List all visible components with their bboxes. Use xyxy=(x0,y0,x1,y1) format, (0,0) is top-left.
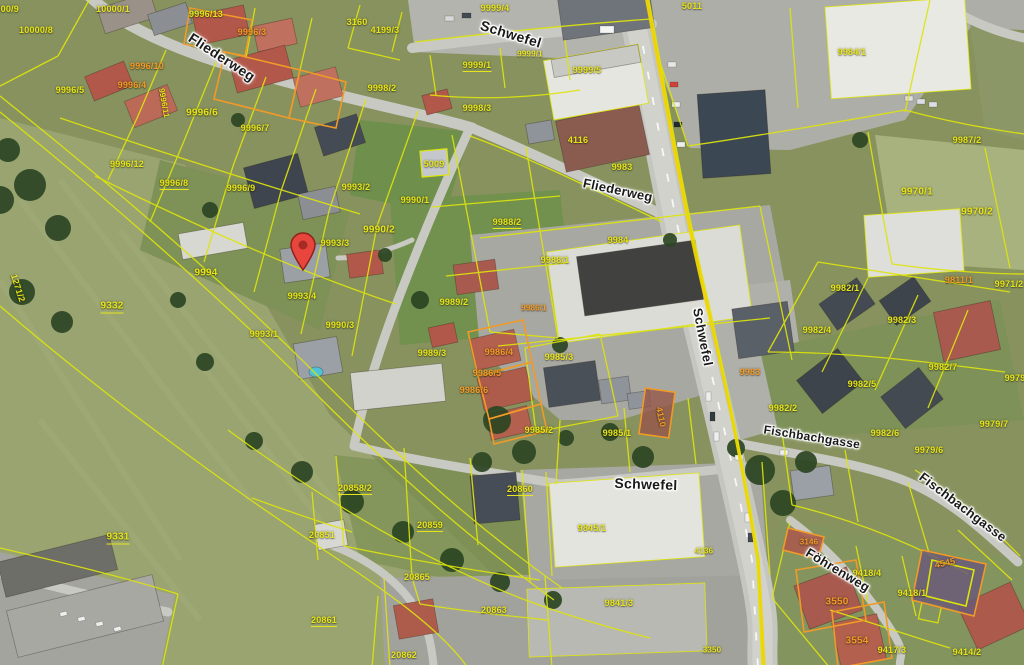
parcel-label: 9996/5 xyxy=(56,85,85,95)
street-label: Fliederweg xyxy=(582,175,654,204)
parcel-label: 3160 xyxy=(347,17,368,27)
street-label: Fischbachgasse xyxy=(763,422,862,451)
parcel-label: 9332 xyxy=(100,301,123,314)
parcel-label: 9986/6 xyxy=(460,385,489,395)
parcel-label: 9993/1 xyxy=(250,329,279,339)
parcel-label: 9985/3 xyxy=(545,352,574,362)
parcel-label: 9999/4 xyxy=(481,3,510,13)
parcel-label: 3554 xyxy=(845,636,868,647)
street-label: Schwefel xyxy=(690,307,716,368)
street-label: Schwefel xyxy=(614,475,678,493)
parcel-label: 10000/8 xyxy=(19,25,53,35)
street-label: Fischbachgasse xyxy=(916,469,1009,544)
parcel-label: 9996/4 xyxy=(118,80,147,90)
parcel-label: 4545 xyxy=(934,556,956,570)
parcel-label: 9982/1 xyxy=(831,283,860,293)
parcel-label: 9984/1 xyxy=(838,47,867,57)
parcel-label: 9983 xyxy=(740,367,761,377)
parcel-label: 9996/10 xyxy=(130,61,164,71)
parcel-label: 9417/3 xyxy=(878,645,907,655)
parcel-label: 9841/3 xyxy=(605,598,634,608)
parcel-label: 9418/1 xyxy=(898,588,927,598)
parcel-label: 9414/2 xyxy=(953,647,982,657)
parcel-label: 9999/1 xyxy=(517,50,543,59)
street-label: Schwefel xyxy=(478,17,543,51)
parcel-label: 9998/3 xyxy=(463,103,492,113)
parcel-label: 9993/4 xyxy=(288,291,317,301)
parcel-label: 20859 xyxy=(417,520,443,532)
map-labels-overlay: 10000/910000/110000/89996/139996/3316041… xyxy=(0,0,1024,665)
parcel-label: 9990/2 xyxy=(363,225,395,236)
location-marker-pin[interactable] xyxy=(288,232,318,272)
parcel-label: 5009 xyxy=(424,159,445,169)
parcel-label: 9985/2 xyxy=(525,425,554,435)
parcel-label: 9999/1 xyxy=(463,60,492,72)
street-label: Fliederweg xyxy=(186,30,259,85)
parcel-label: 9996/12 xyxy=(110,159,144,169)
parcel-label: 4116 xyxy=(568,135,588,145)
parcel-label: 9986/5 xyxy=(473,368,502,378)
parcel-label: 9971/2 xyxy=(995,279,1024,289)
parcel-label: 9982/7 xyxy=(929,362,958,372)
parcel-label: 20865 xyxy=(404,572,430,582)
parcel-label: 9985/1 xyxy=(603,428,632,438)
parcel-label: 9998/2 xyxy=(368,83,397,93)
parcel-label: 20861 xyxy=(311,615,337,627)
parcel-label: 5011 xyxy=(682,1,702,11)
parcel-label: 20851 xyxy=(309,530,335,540)
parcel-label: 9979 xyxy=(1005,373,1024,383)
parcel-label: 9983 xyxy=(612,162,633,172)
parcel-label: 4199/3 xyxy=(371,25,400,35)
parcel-label: 9989/2 xyxy=(440,297,469,307)
parcel-label: 9986/1 xyxy=(521,304,547,313)
parcel-label: 9996/3 xyxy=(238,27,267,37)
parcel-label: 9990/3 xyxy=(326,320,355,330)
parcel-label: 1271/2 xyxy=(9,273,27,303)
parcel-label: 10000/1 xyxy=(96,4,130,14)
parcel-label: 10000/9 xyxy=(0,4,19,14)
parcel-label: 9982/2 xyxy=(769,403,798,413)
parcel-label: 9811/1 xyxy=(945,275,973,285)
parcel-label: 9982/6 xyxy=(871,428,900,438)
parcel-label: 3350 xyxy=(703,646,722,655)
parcel-label: 4136 xyxy=(695,547,714,556)
parcel-label: 20860 xyxy=(507,484,533,496)
parcel-label: 3146 xyxy=(800,538,819,547)
parcel-label: 9982/4 xyxy=(803,325,832,335)
parcel-label: 20862 xyxy=(391,650,417,660)
parcel-label: 20858/2 xyxy=(338,483,372,495)
parcel-label: 9984 xyxy=(608,235,629,245)
parcel-label: 9982/5 xyxy=(848,379,877,389)
parcel-label: 9331 xyxy=(106,532,129,545)
parcel-label: 3550 xyxy=(825,597,848,608)
parcel-label: 9996/6 xyxy=(186,108,218,119)
parcel-label: 9986/4 xyxy=(485,347,514,357)
parcel-label: 9970/1 xyxy=(901,187,933,198)
parcel-label: 9987/2 xyxy=(953,135,982,145)
parcel-label: 9979/6 xyxy=(915,445,944,455)
parcel-label: 4110 xyxy=(654,406,668,428)
parcel-label: 9979/7 xyxy=(980,419,1009,429)
parcel-label: 9996/11 xyxy=(157,88,171,119)
parcel-label: 9970/2 xyxy=(961,207,993,218)
cadastral-aerial-map[interactable]: 10000/910000/110000/89996/139996/3316041… xyxy=(0,0,1024,665)
parcel-label: 9993/2 xyxy=(342,182,371,192)
parcel-label: 9996/13 xyxy=(189,9,223,19)
parcel-label: 9989/3 xyxy=(418,348,447,358)
parcel-label: 9982/3 xyxy=(888,315,917,325)
parcel-label: 9993/3 xyxy=(321,238,350,248)
parcel-label: 20863 xyxy=(481,605,507,615)
parcel-label: 9845/1 xyxy=(578,523,607,533)
parcel-label: 9994 xyxy=(194,268,217,279)
parcel-label: 9996/8 xyxy=(160,178,189,190)
parcel-label: 9990/1 xyxy=(401,195,430,205)
parcel-label: 9988/2 xyxy=(493,217,522,229)
parcel-label: 9996/7 xyxy=(241,123,270,133)
parcel-label: 9999/5 xyxy=(573,65,602,75)
parcel-label: 9996/9 xyxy=(227,183,256,193)
parcel-label: 9988/1 xyxy=(541,255,570,265)
